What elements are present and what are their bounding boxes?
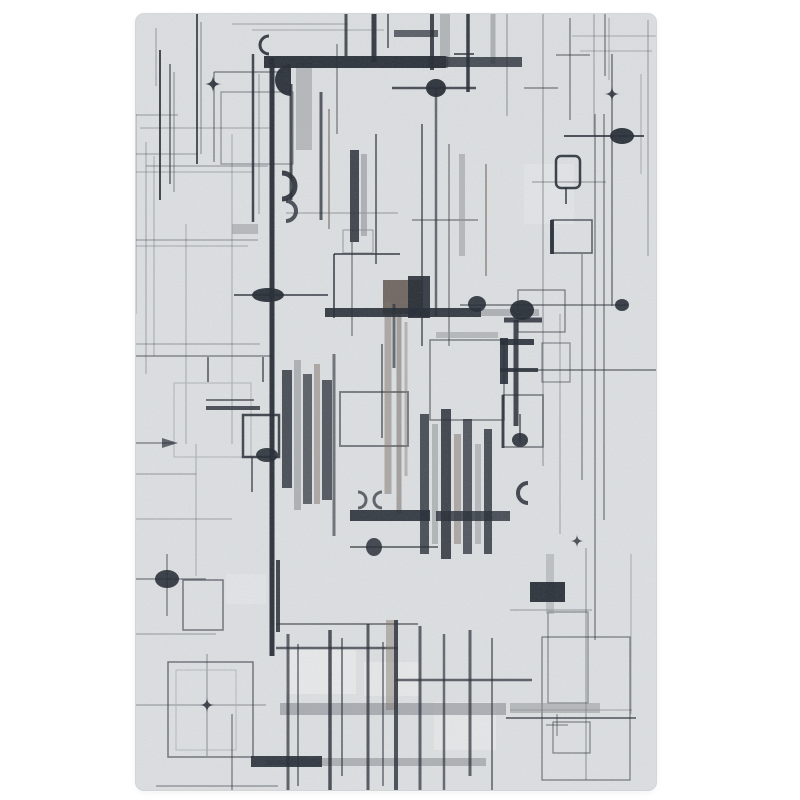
rug [136, 14, 656, 790]
product-photo [0, 0, 800, 800]
fabric-grain-overlay [136, 14, 656, 790]
rug-art-svg [136, 14, 656, 790]
